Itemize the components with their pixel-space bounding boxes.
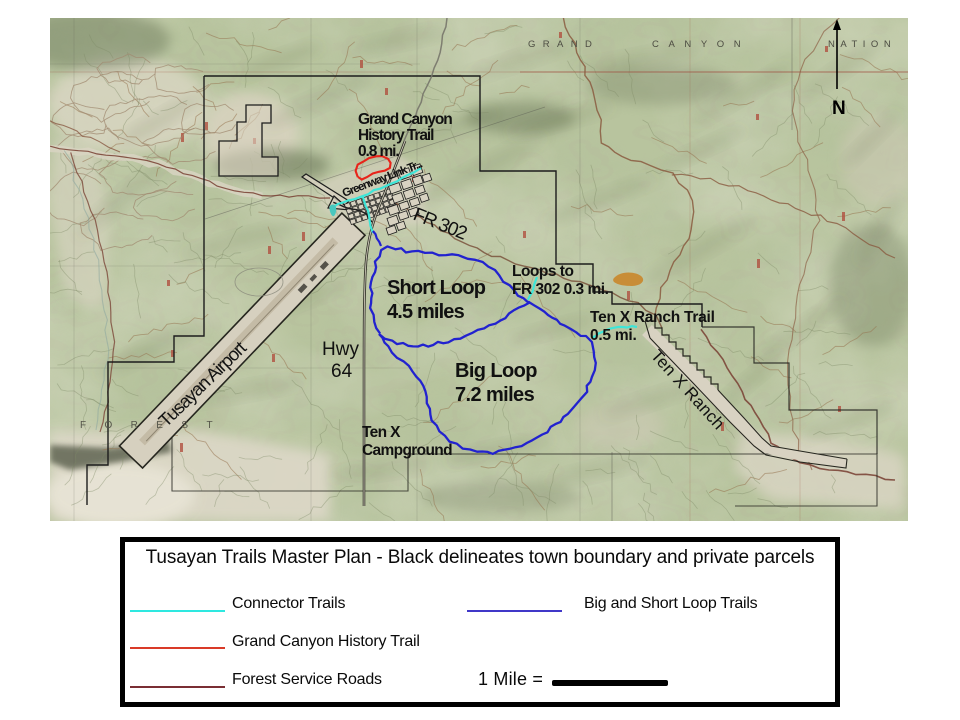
svg-text:64: 64	[331, 361, 353, 382]
svg-text:Ten X: Ten X	[362, 424, 401, 441]
svg-text:Loops to: Loops to	[512, 263, 573, 280]
svg-text:Big Loop: Big Loop	[455, 360, 537, 382]
svg-text:NATION: NATION	[828, 39, 896, 50]
svg-text:N: N	[832, 98, 846, 119]
svg-text:CANYON: CANYON	[652, 39, 750, 50]
svg-text:7.2 miles: 7.2 miles	[455, 384, 535, 406]
svg-text:Campground: Campground	[362, 442, 452, 459]
svg-text:History Trail: History Trail	[358, 127, 434, 144]
svg-text:4.5 miles: 4.5 miles	[387, 301, 465, 323]
svg-text:Grand Canyon: Grand Canyon	[358, 111, 452, 128]
svg-text:FR 302 0.3 mi.: FR 302 0.3 mi.	[512, 281, 609, 298]
svg-text:FOREST: FOREST	[80, 420, 231, 431]
svg-text:0.5 mi.: 0.5 mi.	[590, 327, 637, 344]
svg-text:0.8 mi.: 0.8 mi.	[358, 143, 399, 160]
svg-text:Short Loop: Short Loop	[387, 277, 486, 299]
svg-text:Hwy: Hwy	[322, 339, 359, 360]
svg-text:Ten X Ranch Trail: Ten X Ranch Trail	[590, 309, 715, 326]
svg-text:GRAND: GRAND	[528, 39, 599, 50]
